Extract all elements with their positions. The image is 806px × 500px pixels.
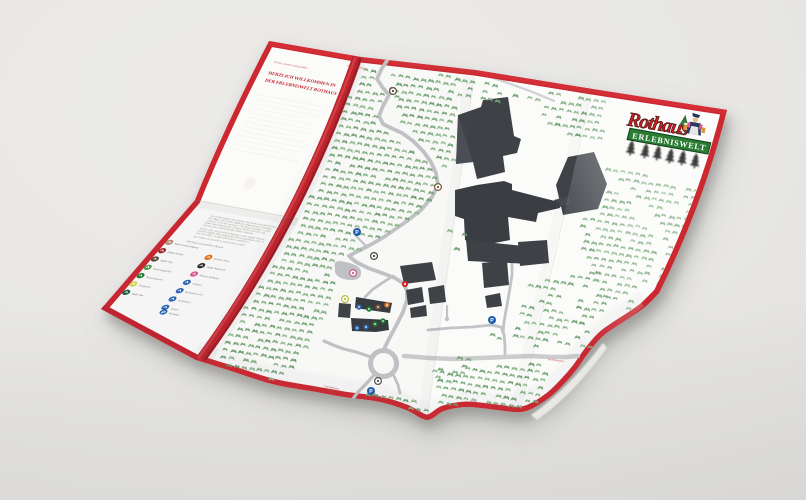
svg-text:P: P	[490, 318, 494, 324]
